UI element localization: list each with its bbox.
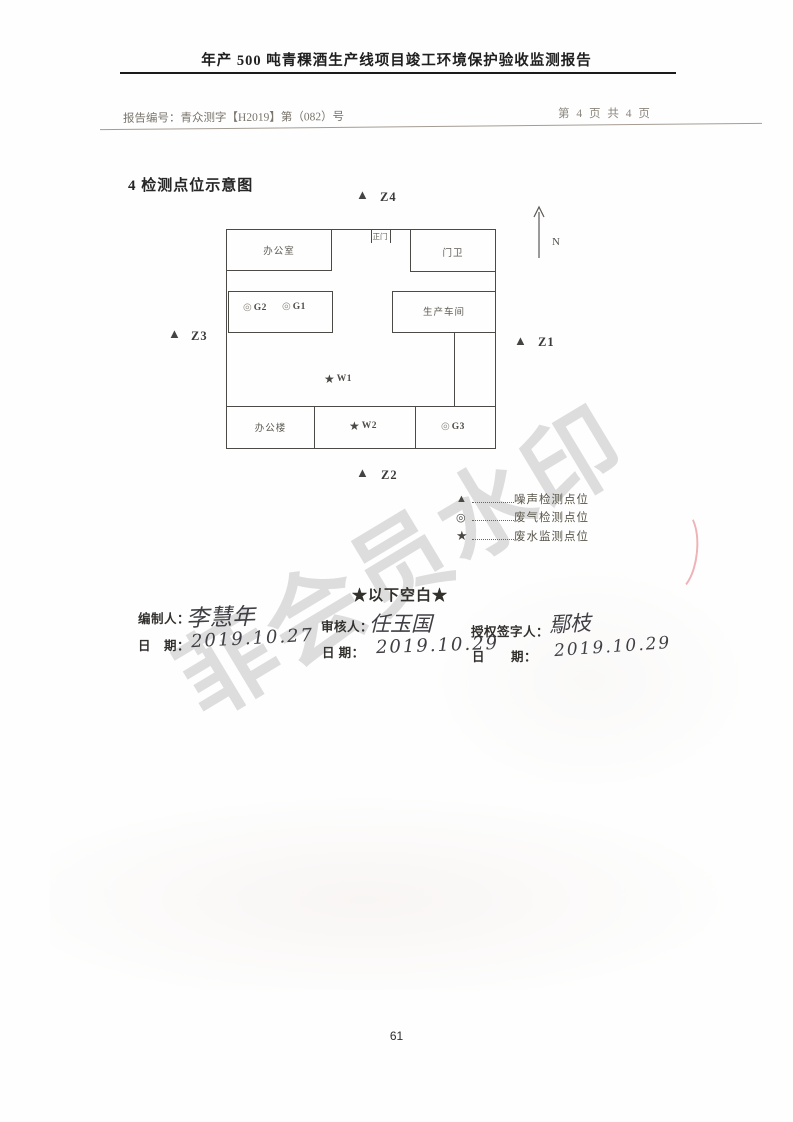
report-number: 报告编号：青众测字【H2019】第（082）号 <box>123 108 344 126</box>
gas-point-g3: ◎ G3 <box>441 422 465 432</box>
legend-item-gas: ◎ 废气检测点位 <box>456 507 589 526</box>
water-point-icon: ★ <box>349 420 360 432</box>
room-workshop-label: 生产车间 <box>393 304 495 318</box>
workshop-side-wall <box>454 332 455 406</box>
document-page: 菲会员水印 年产 500 吨青稞酒生产线项目竣工环境保护验收监测报告 报告编号：… <box>0 0 793 1122</box>
legend-label: 废气检测点位 <box>514 509 589 525</box>
bottom-row-divider-1 <box>314 406 315 448</box>
authorizer-date-label: 日 期： <box>472 646 537 665</box>
section-title: 4 检测点位示意图 <box>128 174 253 195</box>
header-rule <box>120 72 676 74</box>
preparer-label: 编制人： <box>138 608 190 627</box>
legend-leader <box>472 539 514 540</box>
noise-point-icon-z3: ▲ <box>168 327 181 340</box>
main-gate-label: 正门 <box>368 231 392 242</box>
gas-point-label: G3 <box>452 422 465 432</box>
authorizer-label: 授权签字人： <box>471 621 549 640</box>
gas-point-icon: ◎ <box>282 302 291 312</box>
noise-point-label-z3: Z3 <box>191 329 208 344</box>
office-building-label: 办公楼 <box>227 420 314 434</box>
legend-label: 噪声检测点位 <box>514 491 589 507</box>
gas-point-icon: ◎ <box>243 303 252 313</box>
water-point-w2: ★ W2 <box>349 420 377 432</box>
water-point-w1: ★ W1 <box>324 373 352 385</box>
room-guard-label: 门卫 <box>411 245 495 259</box>
water-point-icon: ★ <box>324 373 335 385</box>
noise-point-icon-z1: ▲ <box>514 334 527 347</box>
noise-point-icon-z2: ▲ <box>356 466 369 479</box>
bottom-row-divider-2 <box>415 406 416 448</box>
gas-legend-icon: ◎ <box>456 512 472 525</box>
gas-point-label: G1 <box>293 302 306 312</box>
gas-point-g2: ◎ G2 <box>243 303 267 313</box>
water-point-label: W2 <box>362 421 377 431</box>
gas-point-icon: ◎ <box>441 422 450 432</box>
north-label: N <box>552 236 560 248</box>
noise-point-label-z1: Z1 <box>538 335 555 350</box>
report-title: 年产 500 吨青稞酒生产线项目竣工环境保护验收监测报告 <box>0 49 793 70</box>
preparer-date-label: 日 期： <box>138 635 190 654</box>
legend-item-water: ★ 废水监测点位 <box>456 525 589 544</box>
legend-leader <box>472 520 514 521</box>
legend-leader <box>472 502 514 503</box>
reviewer-date-label: 日 期： <box>322 642 365 661</box>
reviewer-label: 审核人： <box>321 616 373 635</box>
legend: ▲ 噪声检测点位 ◎ 废气检测点位 ★ 废水监测点位 <box>456 488 589 544</box>
legend-label: 废水监测点位 <box>514 528 589 544</box>
site-plan-outline: 办公室 正门 门卫 生产车间 办公楼 ◎ G2 ◎ G1 ★ W1 ★ W2 <box>226 229 496 449</box>
page-number: 61 <box>0 1029 793 1043</box>
bottom-row-wall <box>227 406 495 407</box>
gas-point-g1: ◎ G1 <box>282 302 306 312</box>
blank-below-notice: ★以下空白★ <box>300 584 500 605</box>
reviewer-signature: 任玉国 <box>369 608 432 638</box>
legend-item-noise: ▲ 噪声检测点位 <box>456 488 589 507</box>
noise-point-label-z2: Z2 <box>381 468 398 483</box>
water-legend-icon: ★ <box>456 528 472 544</box>
water-point-label: W1 <box>337 374 352 384</box>
noise-point-label-z4: Z4 <box>380 190 397 205</box>
noise-point-icon-z4: ▲ <box>356 188 369 201</box>
scan-blotch <box>50 790 750 990</box>
gas-point-label: G2 <box>254 303 267 313</box>
page-indicator: 第 4 页 共 4 页 <box>558 105 652 121</box>
north-arrow-icon <box>531 204 547 260</box>
room-office-label: 办公室 <box>227 243 331 257</box>
authorizer-signature: 鄢枝 <box>548 607 592 639</box>
noise-legend-icon: ▲ <box>456 493 472 506</box>
